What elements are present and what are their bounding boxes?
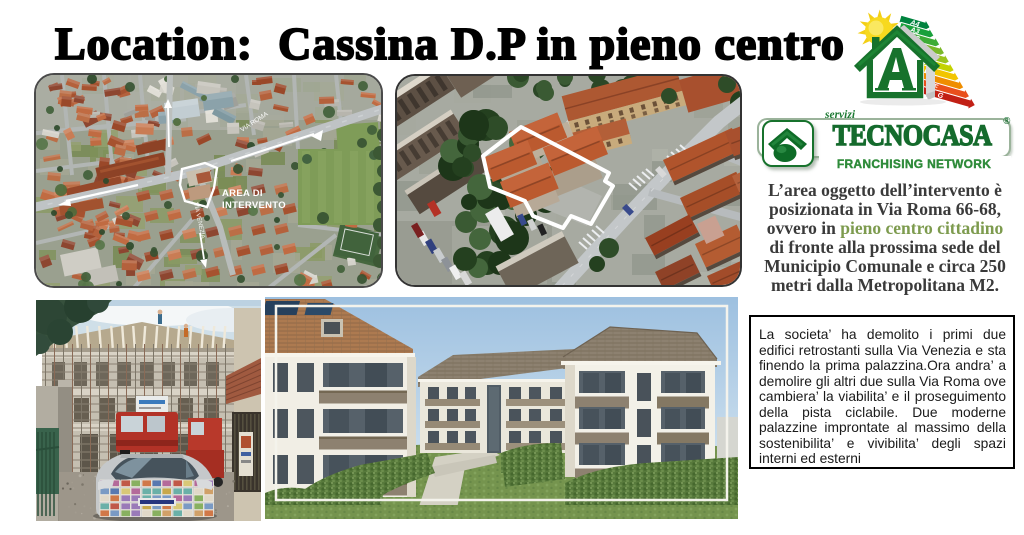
svg-text:AREA DI: AREA DI xyxy=(222,188,263,199)
svg-text:INTERVENTO: INTERVENTO xyxy=(222,200,286,211)
